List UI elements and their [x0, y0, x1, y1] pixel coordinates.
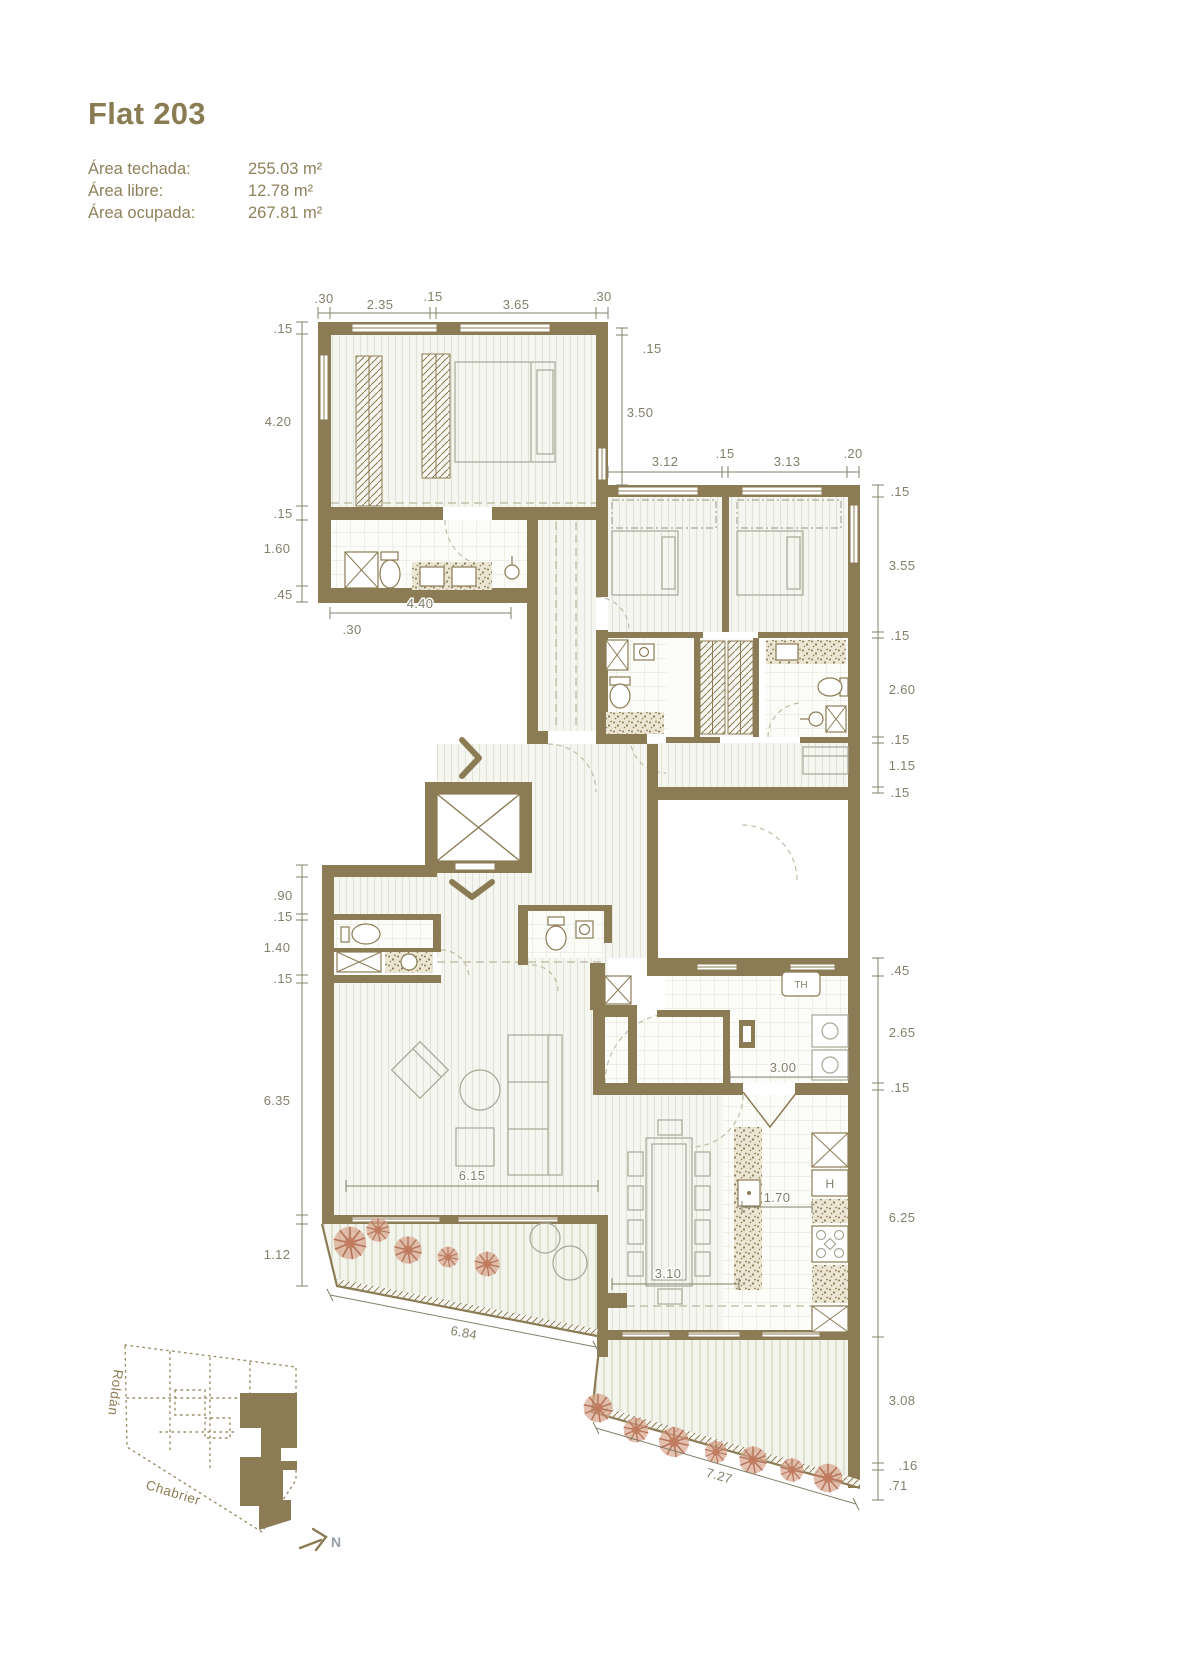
dim-label: 2.60 [889, 682, 916, 697]
pantry-floor [605, 1017, 723, 1083]
dim-label: 1.12 [264, 1247, 291, 1262]
dim-label: .20 [844, 446, 863, 461]
north-label: N [331, 1534, 341, 1550]
dim-label: 6.35 [264, 1093, 291, 1108]
dim-label: 2.65 [889, 1025, 916, 1040]
dim-label: 6.15 [459, 1168, 486, 1183]
north-arrow: N [300, 1529, 341, 1550]
dim-label: 1.70 [764, 1190, 791, 1205]
water-heater-label: TH [794, 980, 807, 991]
street-label-chabrier: Chabrier [144, 1477, 202, 1508]
dim-label: .15 [891, 628, 910, 643]
dim-label: 7.27 [704, 1465, 734, 1487]
floor-plan-page: Flat 203 Área techada: 255.03 m² Área li… [0, 0, 1186, 1678]
dim-label: .15 [891, 484, 910, 499]
locator-map: Roldán Chabrier [105, 1345, 297, 1532]
dim-label: 1.60 [264, 541, 291, 556]
dim-label: 3.10 [655, 1266, 682, 1281]
dim-label: .15 [716, 446, 735, 461]
elevator [437, 794, 520, 861]
dim-label: .15 [274, 971, 293, 986]
dim-label: .71 [889, 1478, 908, 1493]
dim-label: 1.40 [264, 940, 291, 955]
locator-flat-shape [240, 1393, 297, 1530]
door-arc [742, 825, 797, 880]
dim-label: 3.50 [627, 405, 654, 420]
dim-label: .15 [891, 785, 910, 800]
dim-label: 6.25 [889, 1210, 916, 1225]
dim-label: 3.12 [652, 454, 679, 469]
oven-label: H [826, 1177, 835, 1191]
dim-label: .15 [274, 909, 293, 924]
duct-shaft [605, 976, 631, 1004]
dim-label: 4.20 [265, 414, 292, 429]
powder-corridor-floor [334, 877, 437, 914]
dim-label: 6.84 [449, 1323, 478, 1343]
dim-label: 1.15 [889, 758, 916, 773]
dim-label: .90 [274, 888, 293, 903]
dim-label: .15 [274, 321, 293, 336]
dim-label: 3.00 [770, 1060, 797, 1075]
dim-label: .30 [593, 289, 612, 304]
floor-plan-drawing: .30 2.35 .15 3.65 .30 .15 4.20 .15 1.60 … [0, 0, 1186, 1678]
dim-label: 3.13 [774, 454, 801, 469]
dim-label: 3.55 [889, 558, 916, 573]
street-label-roldan: Roldán [105, 1369, 126, 1417]
dim-label: .16 [899, 1458, 918, 1473]
dim-label: .15 [643, 341, 662, 356]
dim-label: .15 [891, 1080, 910, 1095]
dim-label: .15 [424, 289, 443, 304]
dim-label: .15 [274, 506, 293, 521]
dim-label: .30 [343, 622, 362, 637]
dim-label: 3.08 [889, 1393, 916, 1408]
dim-label: 4.40 [407, 596, 434, 611]
corridor-floor [538, 520, 596, 731]
dim-label: 2.35 [367, 297, 394, 312]
dim-label: .45 [274, 587, 293, 602]
dim-label: .15 [891, 732, 910, 747]
bedroom2-floor [608, 497, 722, 632]
dim-label: .30 [315, 291, 334, 306]
dim-label: .45 [891, 963, 910, 978]
bedroom3-floor [729, 497, 848, 632]
dim-label: 3.65 [503, 297, 530, 312]
